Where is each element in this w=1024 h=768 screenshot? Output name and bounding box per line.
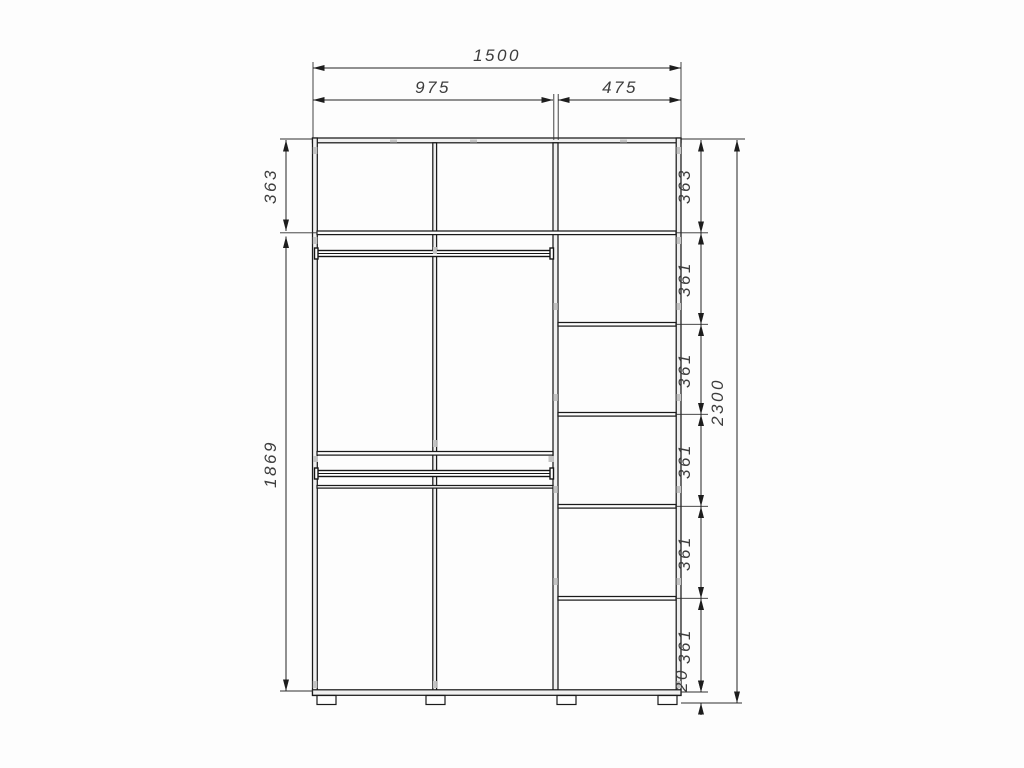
right-shelf-1	[558, 323, 676, 327]
wardrobe-dimension-drawing: 1500 975 475 363 1869 363 361	[0, 0, 1024, 768]
dim-right-cell-3-label: 361	[675, 443, 694, 479]
dim-total-width-label: 1500	[473, 46, 521, 65]
dimension-lines: 1500 975 475 363 1869 363 361	[261, 46, 737, 715]
dim-left-width-label: 975	[415, 78, 451, 97]
right-shelf-3	[558, 505, 676, 509]
dim-right-width-label: 475	[602, 78, 638, 97]
dim-right-cell-5-label: 361	[675, 628, 694, 664]
section-divider-panel	[553, 143, 558, 691]
dim-left-top-label: 363	[261, 168, 280, 204]
bottom-panel	[313, 690, 682, 696]
dim-right-cell-2-label: 361	[675, 352, 694, 388]
foot	[658, 696, 677, 705]
dim-right-cell-4-label: 361	[675, 535, 694, 571]
cabinet-structure	[280, 138, 745, 705]
left-middle-shelf	[317, 452, 553, 456]
dim-right-top-label: 363	[675, 168, 694, 204]
right-shelf-2	[558, 413, 676, 417]
dim-total-height-label: 2300	[708, 378, 727, 427]
dim-left-top-shelf: 363	[261, 140, 286, 231]
left-lower-shelf	[317, 486, 553, 489]
dim-right-cell-1-label: 361	[675, 261, 694, 297]
dim-total-height: 2300	[708, 140, 737, 703]
center-divider-panel	[433, 143, 437, 691]
dim-left-body-label: 1869	[261, 440, 280, 488]
right-side-panel	[676, 138, 681, 696]
drawing-canvas: 1500 975 475 363 1869 363 361	[0, 0, 1024, 768]
dim-left-body: 1869	[261, 237, 286, 692]
dim-base-gap: 20	[672, 668, 701, 715]
left-side-panel	[313, 138, 318, 696]
dim-base-gap-label: 20	[672, 668, 691, 693]
feet	[317, 696, 677, 705]
dim-left-width: 975	[313, 78, 553, 100]
right-shelf-4	[558, 597, 676, 601]
dim-total-width: 1500	[313, 46, 681, 68]
foot	[426, 696, 445, 705]
extension-lines	[280, 62, 742, 703]
foot	[317, 696, 336, 705]
full-width-shelf	[317, 231, 676, 235]
foot	[557, 696, 576, 705]
dim-right-width: 475	[558, 78, 681, 100]
